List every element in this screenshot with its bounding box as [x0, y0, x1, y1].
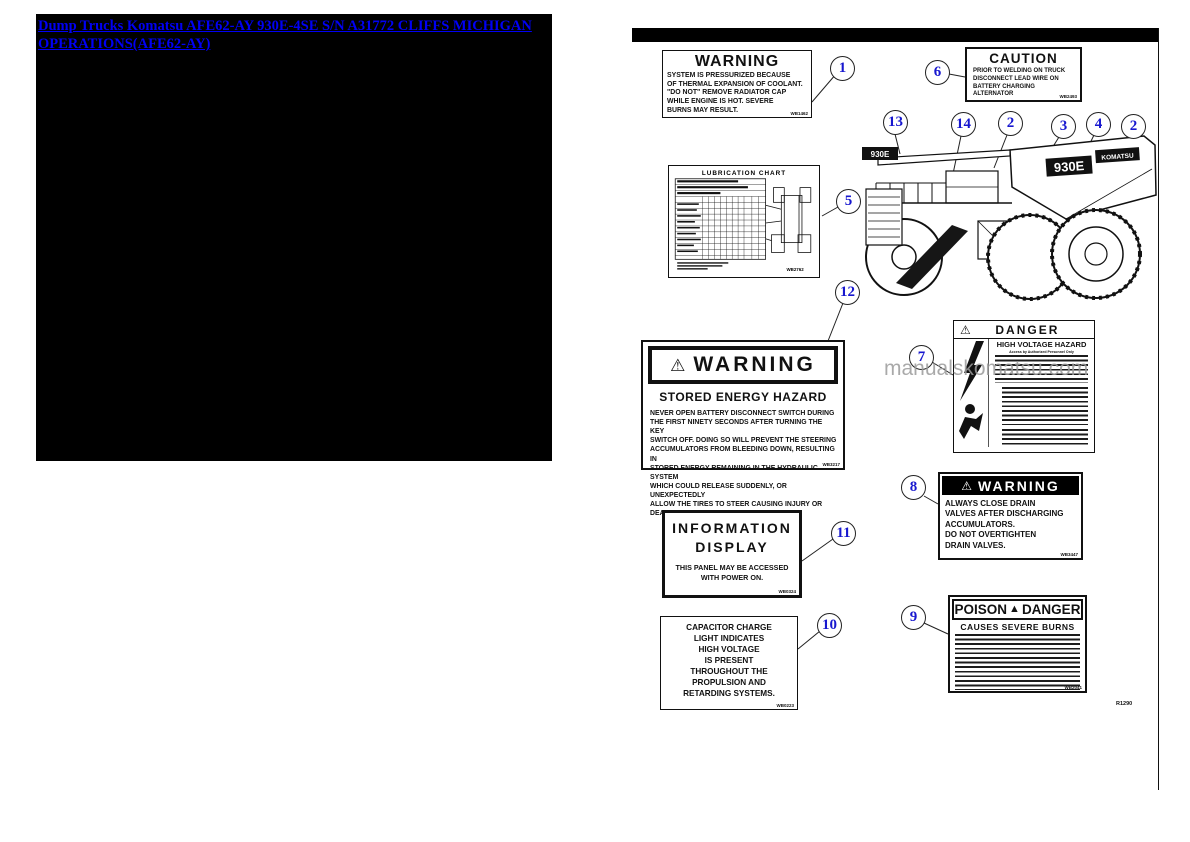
decal-coolant-body: SYSTEM IS PRESSURIZED BECAUSE OF THERMAL…	[663, 71, 811, 116]
callout-number: 11	[836, 525, 850, 542]
callout-5[interactable]: 5	[836, 189, 861, 214]
callout-number: 3	[1060, 118, 1068, 135]
lube-chart-code: WB2762	[787, 267, 805, 272]
decal-stored-energy: ⚠ WARNING STORED ENERGY HAZARD NEVER OPE…	[641, 340, 845, 470]
callout-1[interactable]: 1	[830, 56, 855, 81]
stored-energy-header: ⚠ WARNING	[648, 346, 838, 384]
callout-8[interactable]: 8	[901, 475, 926, 500]
capacitor-charge-body: CAPACITOR CHARGE LIGHT INDICATES HIGH VO…	[661, 622, 797, 699]
decal-sheet-panel: WARNING SYSTEM IS PRESSURIZED BECAUSE OF…	[632, 28, 1159, 790]
decal-coolant-code: WB1462	[790, 111, 808, 116]
truck-front-badge: 930E	[871, 150, 890, 159]
lightning-bolt-person-icon	[956, 339, 986, 443]
drain-valves-title: WARNING	[978, 478, 1060, 494]
decal-high-voltage: ⚠ DANGER HIGH VOLTAGE HAZARD Access by A…	[953, 320, 1095, 453]
callout-number: 10	[822, 617, 837, 634]
decal-caution-welding: CAUTION PRIOR TO WELDING ON TRUCK DISCON…	[965, 47, 1082, 102]
warning-triangle-icon: ⚠	[960, 323, 971, 337]
callout-12[interactable]: 12	[835, 280, 860, 305]
callout-number: 5	[845, 193, 853, 210]
drain-valves-code: WB3447	[1060, 552, 1078, 557]
danger-word: DANGER	[1022, 602, 1081, 617]
high-voltage-subtitle: HIGH VOLTAGE HAZARD	[992, 340, 1091, 349]
callout-2a[interactable]: 2	[998, 111, 1023, 136]
capacitor-charge-code: WB0223	[776, 703, 794, 708]
decal-capacitor-charge: CAPACITOR CHARGE LIGHT INDICATES HIGH VO…	[660, 616, 798, 710]
poison-danger-subtitle: CAUSES SEVERE BURNS	[950, 622, 1085, 632]
callout-number: 2	[1130, 118, 1138, 135]
callout-2b[interactable]: 2	[1121, 114, 1146, 139]
stored-energy-code: WB3217	[822, 462, 840, 467]
high-voltage-header: ⚠ DANGER	[954, 321, 1094, 339]
drain-valves-header: ⚠ WARNING	[942, 476, 1079, 495]
callout-9[interactable]: 9	[901, 605, 926, 630]
callout-number: 12	[840, 284, 855, 301]
callout-3[interactable]: 3	[1051, 114, 1076, 139]
callout-number: 13	[888, 114, 903, 131]
callout-number: 4	[1095, 116, 1103, 133]
callout-11[interactable]: 11	[831, 521, 856, 546]
decal-lubrication-chart: LUBRICATION CHART	[668, 165, 820, 278]
callout-4[interactable]: 4	[1086, 112, 1111, 137]
high-voltage-title: DANGER	[975, 323, 1080, 337]
high-voltage-icon-column	[954, 339, 989, 447]
callout-number: 1	[839, 60, 847, 77]
decal-drain-valves: ⚠ WARNING ALWAYS CLOSE DRAIN VALVES AFTE…	[938, 472, 1083, 560]
warning-triangle-icon: ⚠	[961, 480, 972, 492]
information-display-body: THIS PANEL MAY BE ACCESSED WITH POWER ON…	[665, 563, 799, 583]
information-display-code: WB0324	[778, 589, 796, 594]
callout-number: 8	[910, 479, 918, 496]
high-voltage-note: Access by Authorized Personnel Only	[992, 350, 1091, 354]
truck-model-badge: 930E	[1053, 158, 1085, 175]
callout-10[interactable]: 10	[817, 613, 842, 638]
stored-energy-title: WARNING	[693, 353, 816, 377]
fine-print-block	[1002, 429, 1088, 447]
decal-caution-code: WB2493	[1059, 94, 1077, 99]
decal-coolant-title: WARNING	[663, 53, 811, 71]
lube-chart-title: LUBRICATION CHART	[702, 170, 786, 177]
decal-caution-title: CAUTION	[967, 51, 1080, 66]
callout-number: 14	[956, 116, 971, 133]
watermark-text: manualskomatsu.com	[884, 357, 1088, 381]
manual-page: Dump Trucks Komatsu AFE62-AY 930E-4SE S/…	[0, 0, 1190, 842]
decal-poison-danger: POISON ▲ DANGER CAUSES SEVERE BURNS WB20…	[948, 595, 1087, 693]
stored-energy-subtitle: STORED ENERGY HAZARD	[643, 390, 843, 404]
figure-reference: R1290	[1116, 701, 1132, 707]
truck-illustration: 930E KOMATSU 930E	[860, 125, 1160, 305]
fine-print-block	[1002, 387, 1088, 425]
fine-print-block	[955, 634, 1080, 690]
poison-danger-header: POISON ▲ DANGER	[952, 599, 1083, 620]
callout-number: 6	[934, 64, 942, 81]
poison-word: POISON	[955, 602, 1008, 617]
document-title-link[interactable]: Dump Trucks Komatsu AFE62-AY 930E-4SE S/…	[36, 14, 552, 53]
drain-valves-body: ALWAYS CLOSE DRAIN VALVES AFTER DISCHARG…	[940, 497, 1081, 553]
decal-coolant-warning: WARNING SYSTEM IS PRESSURIZED BECAUSE OF…	[662, 50, 812, 118]
callout-number: 9	[910, 609, 918, 626]
left-black-panel: Dump Trucks Komatsu AFE62-AY 930E-4SE S/…	[36, 14, 552, 461]
information-display-title: INFORMATION DISPLAY	[665, 519, 799, 557]
decal-information-display: INFORMATION DISPLAY THIS PANEL MAY BE AC…	[662, 510, 802, 598]
stored-energy-body: NEVER OPEN BATTERY DISCONNECT SWITCH DUR…	[643, 404, 843, 518]
warning-triangle-icon: ⚠	[670, 357, 685, 374]
callout-6[interactable]: 6	[925, 60, 950, 85]
callout-14[interactable]: 14	[951, 112, 976, 137]
poison-danger-code: WB2041	[1064, 685, 1082, 690]
callout-13[interactable]: 13	[883, 110, 908, 135]
callout-number: 2	[1007, 115, 1015, 132]
warning-triangle-icon: ▲	[1009, 604, 1020, 615]
